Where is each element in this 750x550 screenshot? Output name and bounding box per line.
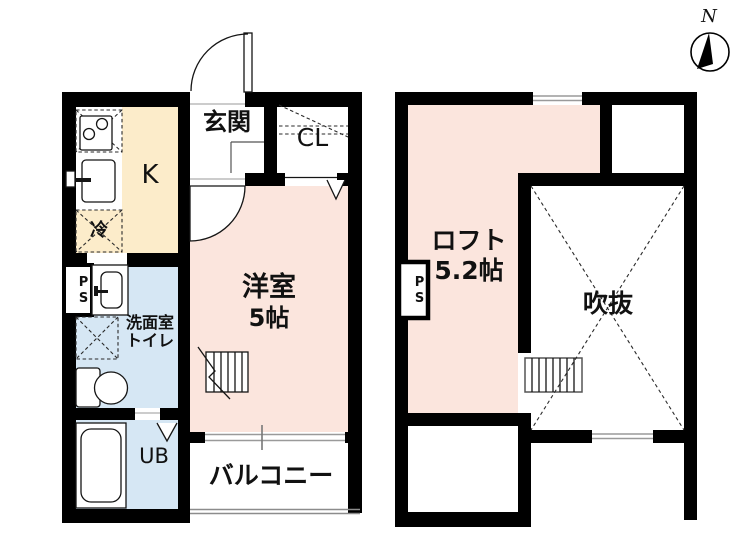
label-western-room-size: 5帖 — [190, 304, 348, 333]
label-closet: CL — [277, 123, 348, 153]
label-washroom-line2: トイレ — [118, 332, 182, 350]
label-refrigerator: 冷 — [76, 220, 122, 242]
label-kitchen: K — [122, 160, 178, 191]
label-washroom-line1: 洗面室 — [118, 314, 182, 332]
entrance-step — [231, 142, 264, 173]
north-arrow-icon — [697, 33, 713, 69]
balcony-outline — [190, 510, 360, 514]
label-western-room: 洋室 5帖 — [190, 272, 348, 333]
label-balcony: バルコニー — [192, 461, 350, 491]
entrance-door-arc — [191, 34, 248, 91]
label-pipe-space-1f: PS — [66, 269, 90, 313]
floorplan-drawing — [0, 0, 750, 550]
label-loft-name: ロフト — [408, 226, 530, 256]
label-western-room-name: 洋室 — [190, 272, 348, 304]
label-unit-bath: UB — [126, 444, 182, 469]
label-pipe-space-2f: PS — [402, 267, 426, 315]
label-entrance: 玄関 — [190, 108, 264, 137]
bathtub-icon — [76, 423, 126, 508]
compass — [691, 33, 729, 71]
entrance-opening — [190, 92, 245, 107]
entrance-door — [190, 33, 252, 107]
void-bottom-window — [592, 430, 653, 443]
floorplan-canvas: 玄関 CL K 冷 PS 洋室 5帖 洗面室 トイレ UB バルコニー ロフト … — [0, 0, 750, 550]
label-washroom: 洗面室 トイレ — [118, 314, 182, 351]
washbasin-icon — [92, 265, 128, 315]
loft-top-window — [533, 92, 582, 105]
label-void: 吹抜 — [540, 289, 676, 319]
label-north: N — [699, 6, 719, 28]
stairs-1f-icon — [198, 347, 248, 399]
entrance-door-leaf — [244, 33, 252, 92]
